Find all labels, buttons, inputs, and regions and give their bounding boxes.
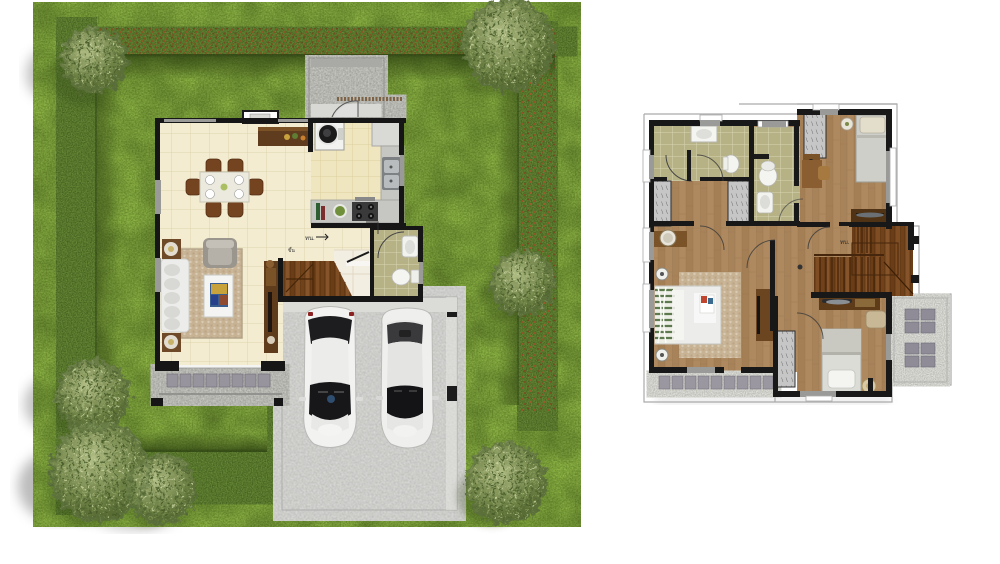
svg-text:ทบ.: ทบ. — [840, 240, 850, 246]
svg-text:ทน.: ทน. — [305, 236, 315, 242]
